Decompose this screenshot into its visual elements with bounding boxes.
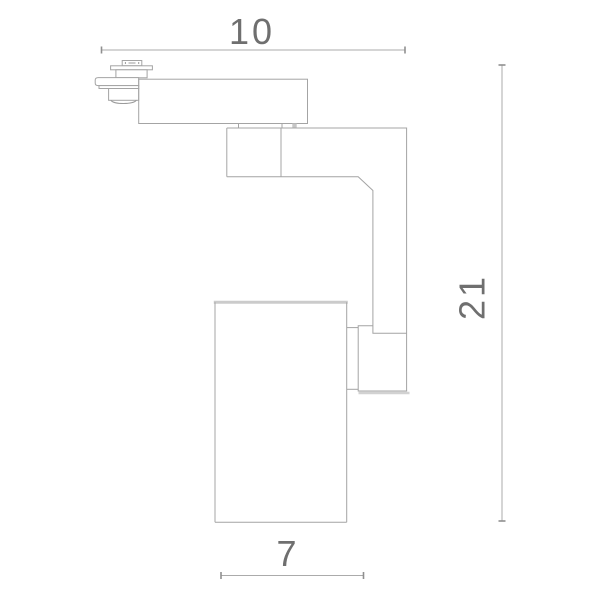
bottom-width-dimension: 7: [221, 533, 364, 579]
right-height-label: 21: [452, 274, 493, 320]
adapter-cylinder: [109, 89, 139, 101]
right-height-dimension: 21: [452, 65, 506, 521]
bracket-outline: [358, 326, 407, 391]
screw-flange: [111, 66, 153, 70]
support-arm: [227, 128, 407, 391]
top-width-dimension: 10: [102, 11, 406, 54]
track-adapter: [95, 61, 307, 124]
adapter-housing: [139, 79, 308, 123]
bottom-width-label: 7: [276, 533, 299, 574]
lamp-body: [214, 302, 348, 522]
arm-inner-edge: [227, 177, 407, 334]
dimension-drawing-canvas: 10 21 7: [0, 0, 600, 601]
mount-bracket: [347, 326, 410, 393]
joint-stub-block: [292, 124, 296, 129]
arm-outer-edge: [227, 128, 407, 391]
screw-body: [116, 70, 147, 78]
track-light-dimension-drawing: 10 21 7: [0, 0, 600, 601]
top-width-label: 10: [229, 11, 275, 52]
swivel-joint: [227, 124, 297, 177]
adapter-lip: [95, 78, 139, 86]
